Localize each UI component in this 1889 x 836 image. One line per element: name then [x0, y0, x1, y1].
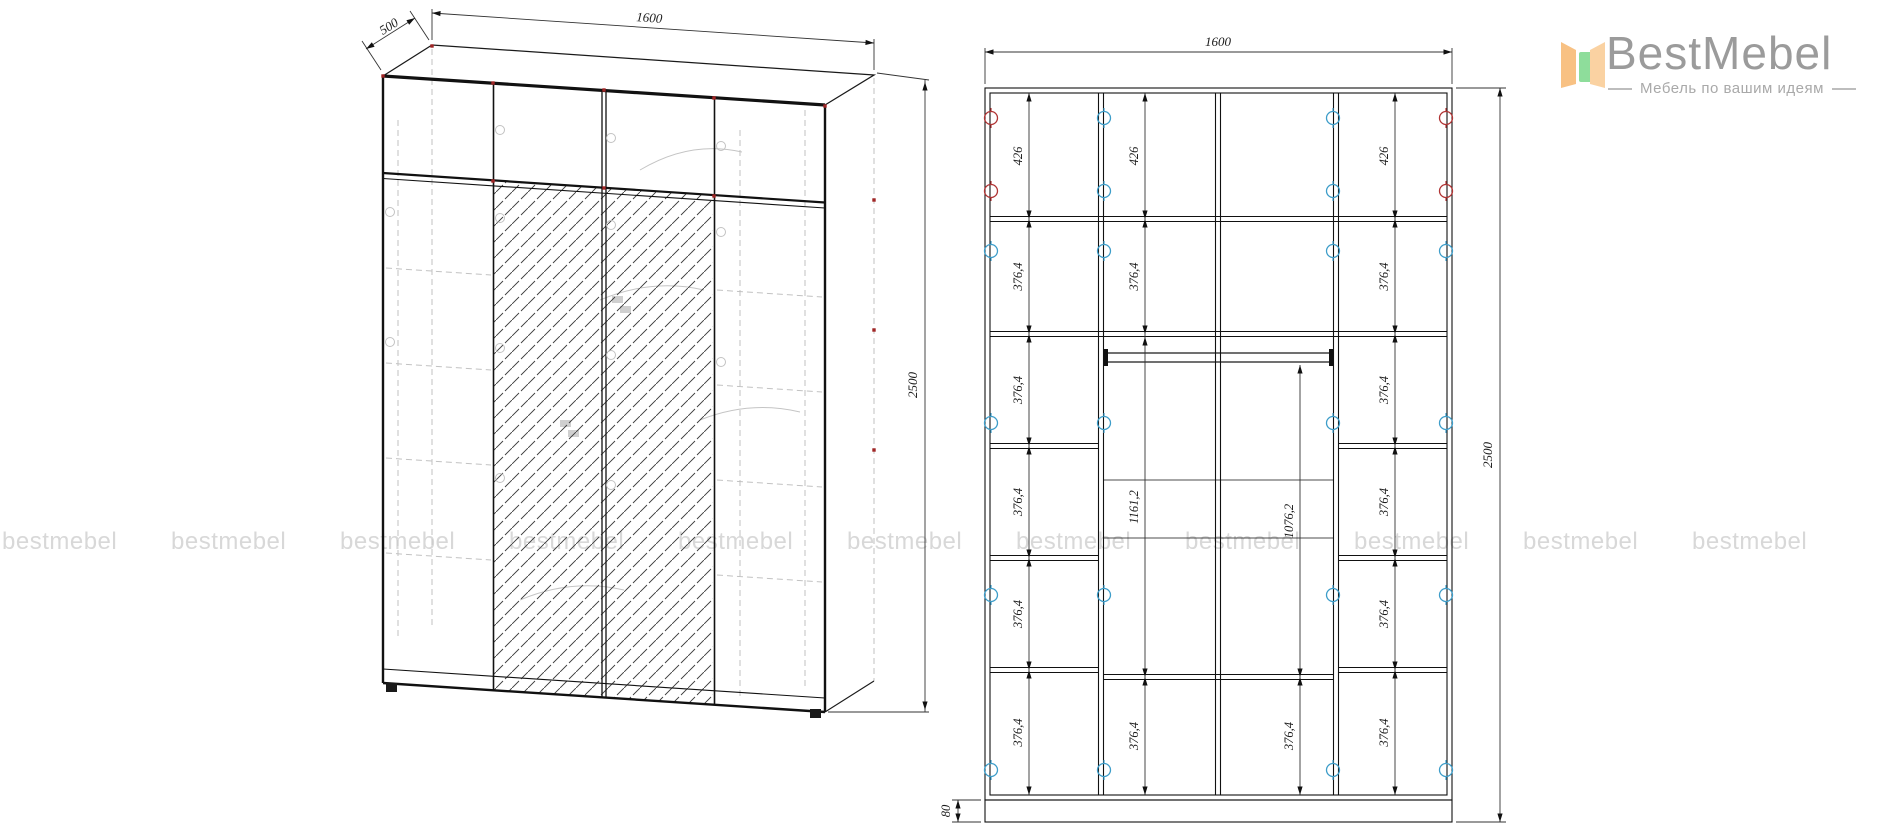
dimension-label: 376,4 [1377, 262, 1391, 291]
hinge-cup-icon [717, 228, 726, 237]
hinge-cup-icon [386, 208, 395, 217]
hinge-dot-icon [602, 186, 605, 189]
top-face [383, 45, 874, 105]
dimension-label: 376,4 [1282, 722, 1296, 751]
hinge-dot-icon [823, 104, 826, 107]
hinge-dot-icon [491, 179, 494, 182]
hinge-blue-icon [1440, 589, 1453, 602]
dimension-label: 376,4 [1127, 262, 1141, 291]
hanging-rod [1103, 349, 1334, 366]
tagline-dash-right [1832, 88, 1856, 90]
depth-dimension-label: 500 [376, 14, 401, 37]
logo-tagline: Мебель по вашим идеям [1640, 80, 1824, 97]
dimension-label: 426 [1377, 146, 1391, 166]
hinge-red-icon [985, 112, 998, 125]
wardrobe-3d-view: 500 1600 2500 [362, 9, 929, 718]
dimension-label: 376,4 [1011, 600, 1025, 629]
bestmebel-logo-icon [1560, 30, 1606, 90]
hinge-dot-icon [430, 44, 433, 47]
hinge-dot-icon [602, 88, 605, 91]
wardrobe-technical-drawing: 500 1600 2500 [0, 0, 1889, 836]
plinth-height-label: 80 [939, 804, 953, 817]
hinge-blue-icon [985, 245, 998, 258]
technical-drawing-page: bestmebelbestmebelbestmebelbestmebelbest… [0, 0, 1889, 836]
right-view-extension-lines [952, 48, 1506, 822]
hinge-red-icon [1440, 112, 1453, 125]
hinge-dot-icon [872, 198, 875, 201]
height-dimension-label: 2500 [905, 372, 920, 399]
dimension-label: 376,4 [1127, 722, 1141, 751]
hinge-blue-icon [1440, 764, 1453, 777]
hinge-blue-icon [985, 417, 998, 430]
hinge-dot-icon [712, 194, 715, 197]
hinge-dot-icon [872, 448, 875, 451]
hinge-dot-icon [712, 96, 715, 99]
dimension-label: 376,4 [1377, 376, 1391, 405]
dimension-label: 426 [1011, 146, 1025, 166]
width-dimension-label: 1600 [636, 9, 663, 26]
hinge-blue-icon [1440, 417, 1453, 430]
dimension-label: 1076,2 [1282, 504, 1296, 538]
dimension-label: 1161,2 [1127, 490, 1141, 523]
hinge-cup-icon [496, 126, 505, 135]
hinge-red-icon [1440, 185, 1453, 198]
mirror-door-hatch [494, 181, 713, 705]
hinge-blue-icon [985, 764, 998, 777]
logo-brand-text: BestMebel [1606, 30, 1856, 76]
hinge-dot-icon [872, 328, 875, 331]
hinge-cup-icon [717, 358, 726, 367]
dimension-label: 376,4 [1011, 262, 1025, 291]
hinge-blue-icon [985, 589, 998, 602]
hinge-red-icon [985, 185, 998, 198]
bestmebel-logo[interactable]: BestMebel Мебель по вашим идеям [1560, 30, 1856, 97]
dimension-label: 376,4 [1011, 376, 1025, 405]
dimension-label: 376,4 [1377, 488, 1391, 517]
dimension-label: 376,4 [1011, 488, 1025, 517]
elevation-height-label: 2500 [1480, 442, 1495, 469]
dimension-label: 376,4 [1377, 718, 1391, 747]
hinge-cup-icon [607, 134, 616, 143]
hinge-dot-icon [491, 81, 494, 84]
elevation-width-label: 1600 [1205, 34, 1232, 49]
hinge-cup-icon [386, 338, 395, 347]
side-face-edge [825, 681, 874, 712]
dimension-label: 376,4 [1377, 600, 1391, 629]
carcass [985, 88, 1452, 822]
dimension-label: 376,4 [1011, 718, 1025, 747]
hinge-blue-icon [1440, 245, 1453, 258]
tagline-dash-left [1608, 88, 1632, 90]
hinge-dot-icon [381, 74, 384, 77]
dimension-label: 426 [1127, 146, 1141, 166]
